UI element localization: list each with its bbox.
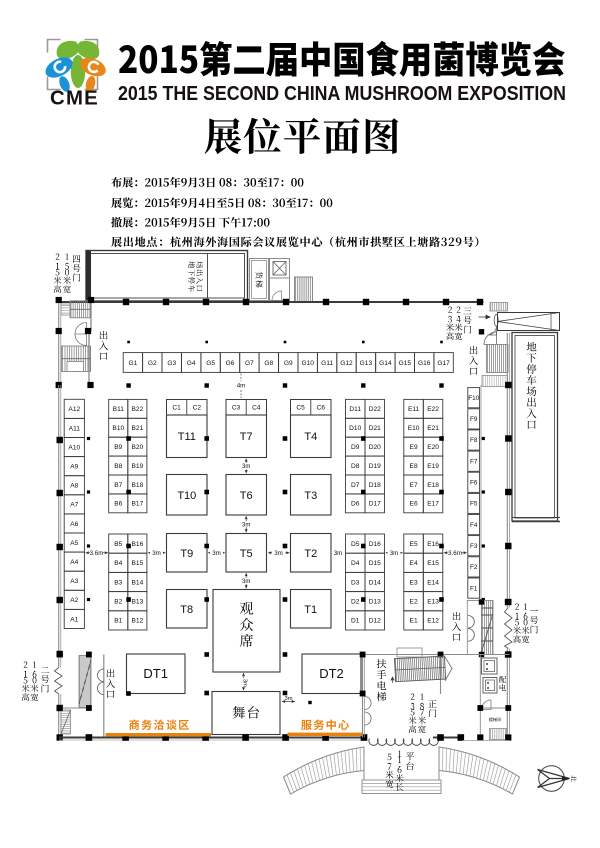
svg-text:T7: T7 (240, 431, 253, 443)
svg-text:E5: E5 (410, 541, 418, 548)
svg-text:D12: D12 (369, 618, 381, 625)
svg-text:T6: T6 (240, 490, 253, 502)
svg-text:F4: F4 (470, 522, 478, 529)
svg-text:G1: G1 (129, 360, 138, 367)
svg-text:C5: C5 (296, 405, 305, 412)
svg-text:G10: G10 (301, 360, 314, 367)
svg-text:C6: C6 (317, 405, 326, 412)
svg-text:B19: B19 (132, 463, 144, 470)
svg-text:D16: D16 (369, 541, 381, 548)
svg-text:E1: E1 (410, 618, 418, 625)
svg-text:D1: D1 (351, 618, 360, 625)
svg-text:DT1: DT1 (143, 666, 168, 681)
svg-text:A7: A7 (70, 502, 78, 509)
svg-text:B12: B12 (132, 618, 144, 625)
svg-text:3m: 3m (334, 550, 343, 557)
svg-text:F9: F9 (470, 416, 478, 423)
svg-text:D9: D9 (351, 444, 360, 451)
svg-text:E19: E19 (427, 463, 439, 470)
svg-text:D5: D5 (351, 541, 360, 548)
svg-text:B4: B4 (114, 560, 122, 567)
svg-text:3m: 3m (242, 579, 250, 585)
svg-text:T11: T11 (178, 431, 196, 443)
svg-text:G15: G15 (399, 360, 412, 367)
svg-text:D21: D21 (369, 425, 381, 432)
svg-text:G14: G14 (379, 360, 392, 367)
svg-text:D8: D8 (351, 463, 360, 470)
svg-text:3.6m: 3.6m (448, 550, 462, 557)
svg-text:T3: T3 (304, 490, 317, 502)
svg-text:B6: B6 (114, 501, 122, 508)
svg-text:E4: E4 (410, 560, 418, 567)
svg-text:T5: T5 (240, 548, 253, 560)
svg-text:A3: A3 (70, 578, 78, 585)
svg-text:G17: G17 (437, 360, 450, 367)
svg-text:B11: B11 (113, 406, 125, 413)
svg-text:F5: F5 (470, 501, 478, 508)
svg-text:D3: D3 (351, 579, 360, 586)
svg-text:A12: A12 (68, 406, 80, 413)
svg-text:F6: F6 (470, 480, 478, 487)
svg-text:CME: CME (50, 88, 99, 110)
svg-text:G7: G7 (245, 360, 254, 367)
svg-text:E3: E3 (410, 579, 418, 586)
svg-text:E13: E13 (427, 599, 439, 606)
svg-text:T4: T4 (304, 431, 317, 443)
svg-text:B10: B10 (112, 425, 124, 432)
svg-text:G3: G3 (167, 360, 176, 367)
svg-text:B17: B17 (132, 501, 144, 508)
svg-text:楼梯间: 楼梯间 (489, 716, 502, 723)
svg-text:G9: G9 (284, 360, 293, 367)
svg-text:B14: B14 (132, 579, 144, 586)
svg-text:F7: F7 (470, 458, 478, 465)
svg-text:F3: F3 (470, 543, 478, 550)
svg-text:A1: A1 (70, 616, 78, 623)
svg-text:G12: G12 (340, 360, 353, 367)
svg-text:F8: F8 (470, 437, 478, 444)
svg-text:B20: B20 (132, 444, 144, 451)
svg-text:B7: B7 (114, 482, 122, 489)
svg-text:T1: T1 (304, 604, 317, 616)
svg-text:G11: G11 (321, 360, 333, 367)
svg-text:3m: 3m (212, 550, 221, 557)
svg-text:D14: D14 (369, 579, 381, 586)
svg-text:G5: G5 (206, 360, 215, 367)
svg-text:E2: E2 (410, 599, 418, 606)
svg-text:3.6m: 3.6m (90, 550, 104, 557)
svg-text:D4: D4 (351, 560, 360, 567)
svg-text:F1: F1 (470, 585, 478, 592)
svg-text:B1: B1 (114, 618, 122, 625)
svg-text:B5: B5 (114, 541, 122, 548)
svg-text:D7: D7 (351, 482, 360, 489)
svg-text:2015 THE SECOND CHINA MUSHROOM: 2015 THE SECOND CHINA MUSHROOM EXPOSITIO… (118, 83, 566, 105)
svg-text:A4: A4 (70, 559, 78, 566)
svg-text:E21: E21 (427, 425, 439, 432)
svg-text:B9: B9 (114, 444, 122, 451)
svg-text:G8: G8 (264, 360, 273, 367)
svg-text:D22: D22 (369, 406, 381, 413)
svg-text:D11: D11 (349, 406, 361, 413)
svg-text:T8: T8 (180, 604, 193, 616)
svg-text:3m: 3m (284, 696, 292, 702)
svg-text:E10: E10 (408, 425, 420, 432)
svg-text:C2: C2 (193, 405, 202, 412)
svg-text:B18: B18 (132, 482, 144, 489)
svg-text:3m: 3m (242, 679, 248, 687)
svg-text:G13: G13 (360, 360, 373, 367)
svg-text:E20: E20 (427, 444, 439, 451)
svg-text:3m: 3m (390, 550, 399, 557)
svg-text:F2: F2 (470, 564, 478, 571)
svg-text:D19: D19 (369, 463, 381, 470)
svg-text:A10: A10 (68, 444, 80, 451)
svg-text:D17: D17 (369, 501, 381, 508)
svg-text:D6: D6 (351, 501, 360, 508)
svg-text:B13: B13 (132, 599, 144, 606)
svg-text:DT2: DT2 (319, 666, 344, 681)
svg-text:E11: E11 (408, 406, 420, 413)
svg-text:B16: B16 (132, 541, 144, 548)
svg-text:B22: B22 (132, 406, 144, 413)
svg-text:E9: E9 (410, 444, 418, 451)
svg-text:3m: 3m (242, 522, 250, 528)
svg-text:F10: F10 (468, 395, 479, 402)
svg-text:E16: E16 (427, 541, 439, 548)
svg-text:D20: D20 (369, 444, 381, 451)
svg-text:D2: D2 (351, 599, 360, 606)
svg-text:E6: E6 (410, 501, 418, 508)
svg-text:D15: D15 (369, 560, 381, 567)
svg-text:G16: G16 (418, 360, 431, 367)
svg-text:E14: E14 (427, 579, 439, 586)
svg-text:A6: A6 (70, 521, 78, 528)
svg-text:3m: 3m (242, 464, 250, 470)
svg-text:G4: G4 (187, 360, 196, 367)
svg-text:A9: A9 (70, 464, 78, 471)
svg-text:4m: 4m (237, 382, 246, 389)
svg-text:T2: T2 (304, 548, 317, 560)
svg-text:D18: D18 (369, 482, 381, 489)
svg-text:E12: E12 (427, 618, 439, 625)
svg-text:B3: B3 (114, 579, 122, 586)
svg-text:T9: T9 (180, 548, 193, 560)
svg-text:C3: C3 (232, 405, 241, 412)
svg-text:A2: A2 (70, 597, 78, 604)
svg-text:T10: T10 (177, 490, 196, 502)
svg-text:A5: A5 (70, 540, 78, 547)
svg-text:E15: E15 (427, 560, 439, 567)
svg-text:E8: E8 (410, 463, 418, 470)
svg-text:B8: B8 (114, 463, 122, 470)
svg-text:C1: C1 (172, 405, 181, 412)
svg-text:G2: G2 (148, 360, 157, 367)
svg-text:B15: B15 (132, 560, 144, 567)
svg-text:D13: D13 (369, 599, 381, 606)
svg-text:C4: C4 (252, 405, 261, 412)
svg-text:B21: B21 (132, 425, 144, 432)
svg-text:E22: E22 (427, 406, 439, 413)
svg-text:A11: A11 (69, 425, 81, 432)
svg-text:G6: G6 (226, 360, 235, 367)
svg-text:E18: E18 (427, 482, 439, 489)
svg-text:3m: 3m (152, 550, 161, 557)
svg-text:B2: B2 (114, 599, 122, 606)
svg-text:E7: E7 (410, 482, 418, 489)
svg-text:3m: 3m (274, 550, 283, 557)
svg-text:D10: D10 (349, 425, 361, 432)
svg-text:A8: A8 (70, 483, 78, 490)
svg-text:E17: E17 (427, 501, 439, 508)
